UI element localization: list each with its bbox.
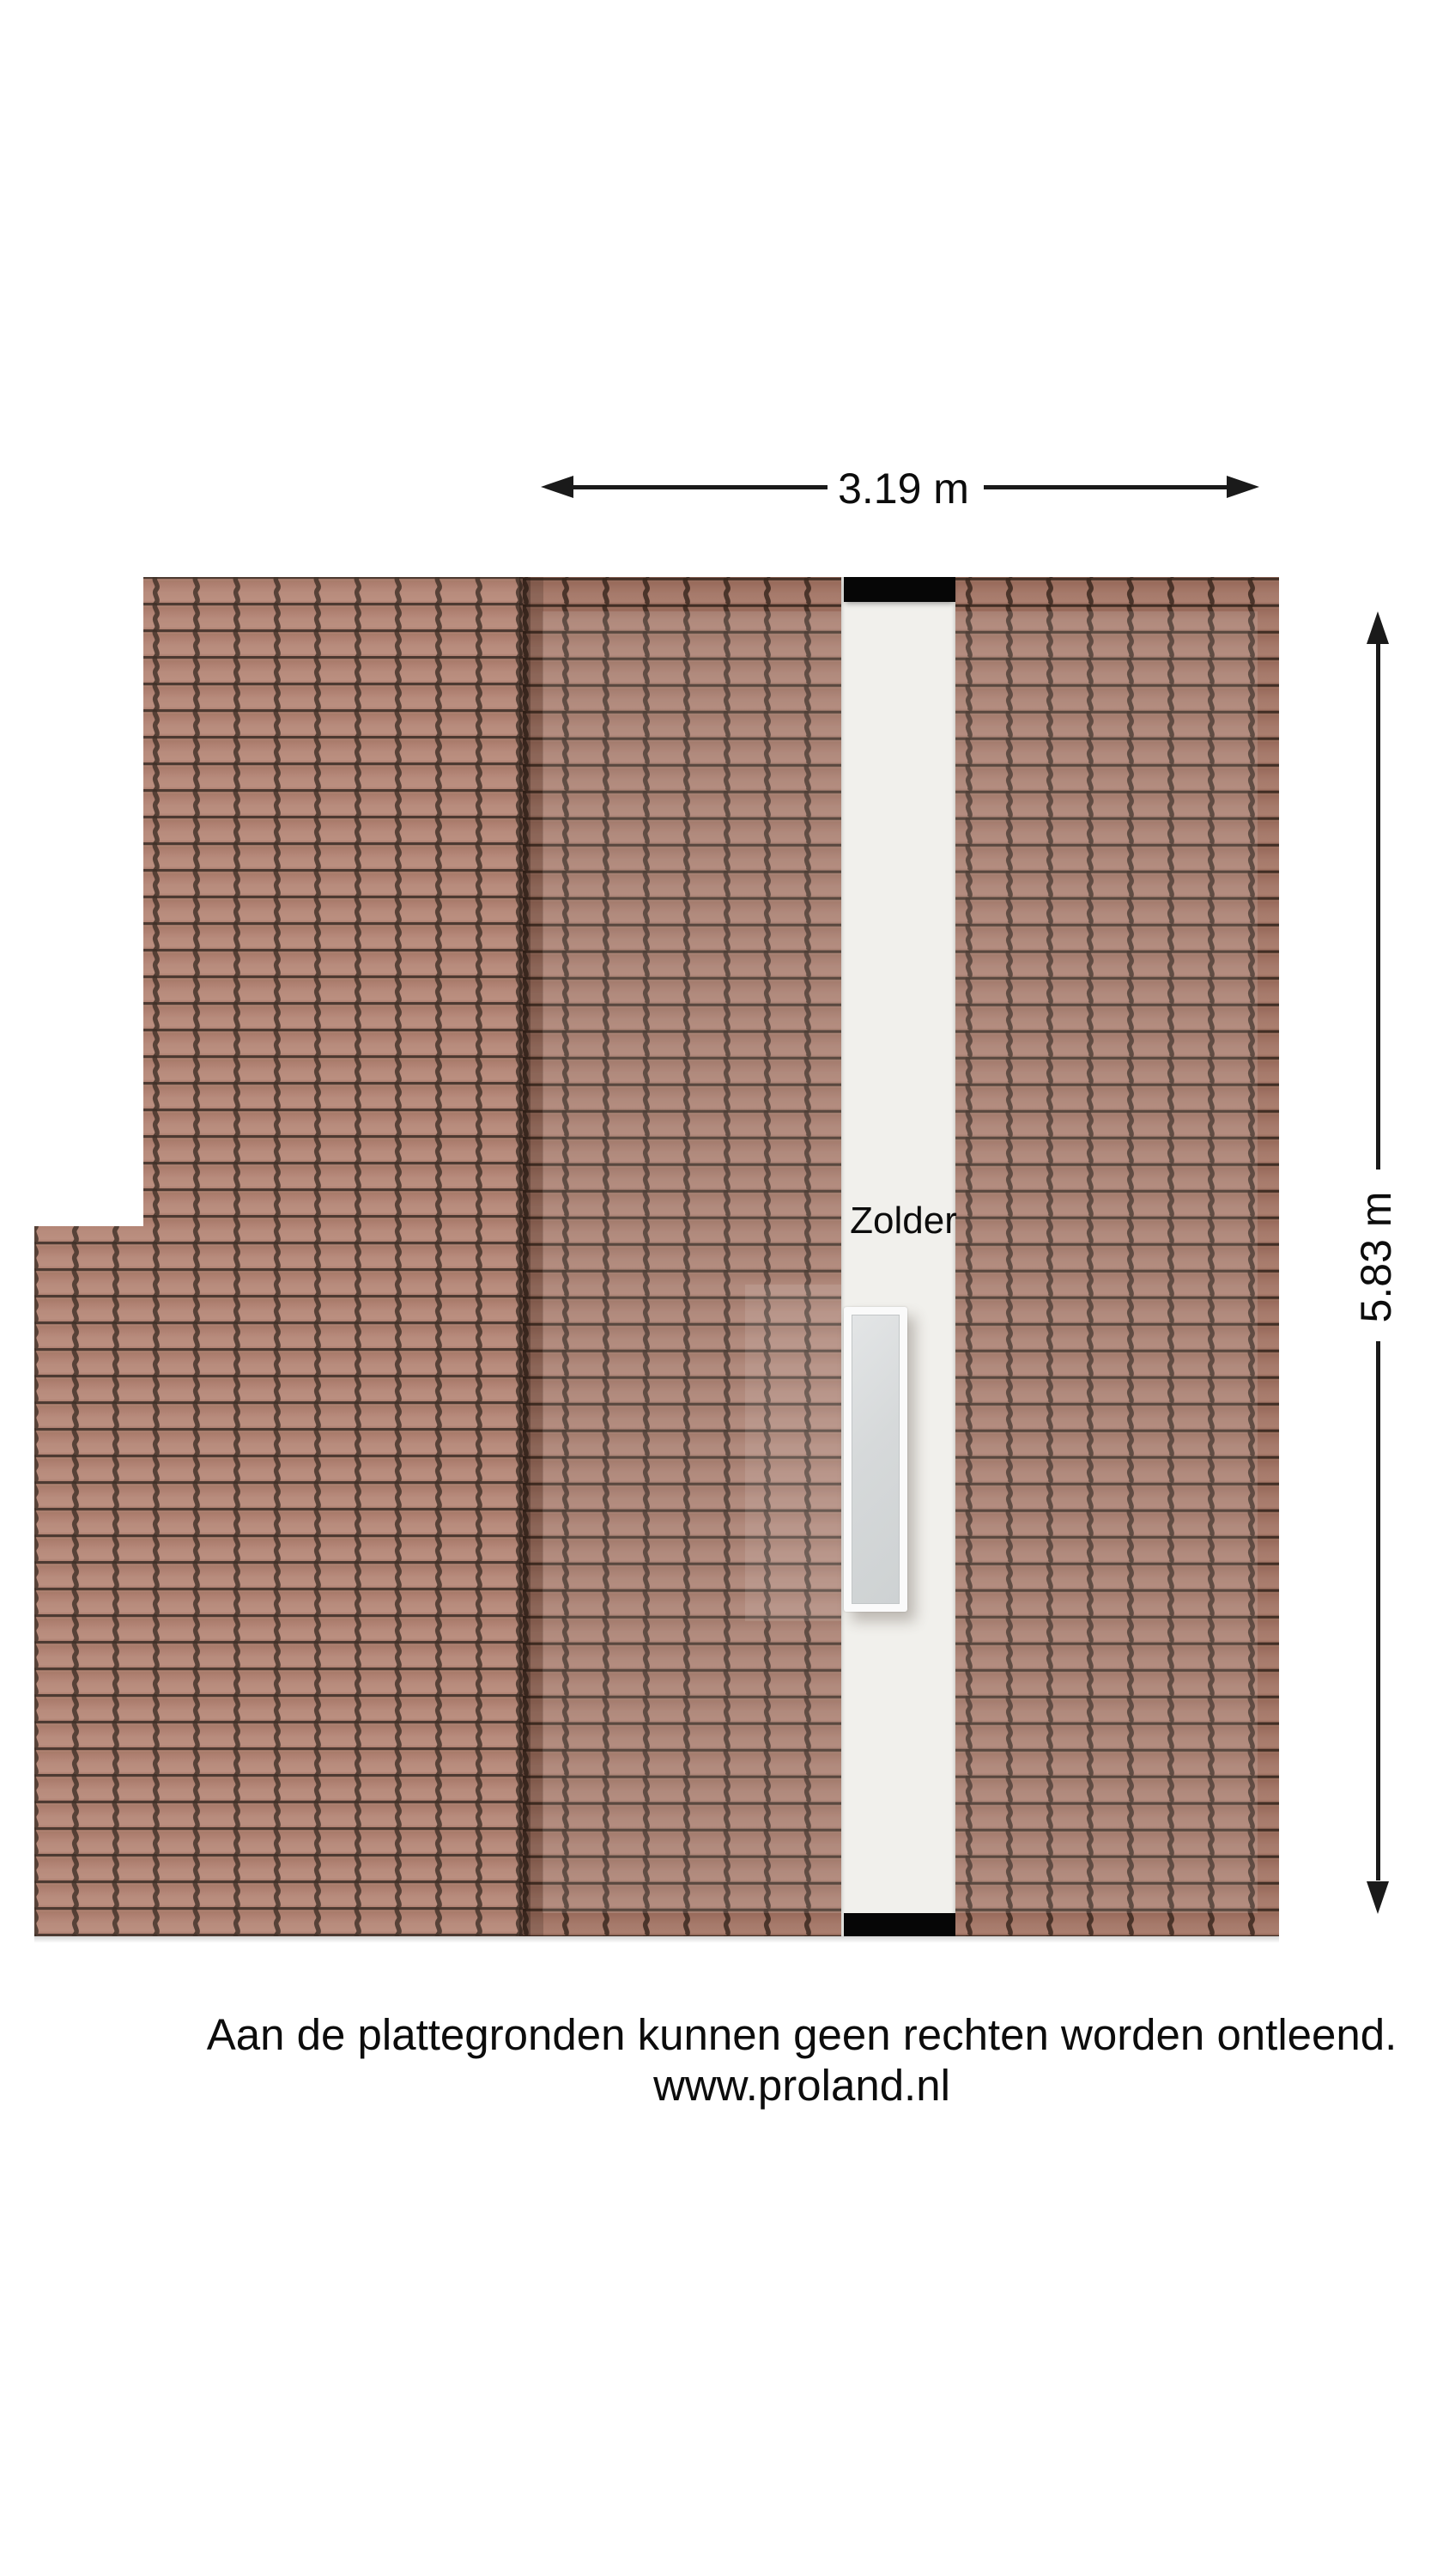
skylight-window xyxy=(844,1307,907,1612)
footer-disclaimer: Aan de plattegronden kunnen geen rechten… xyxy=(155,2009,1449,2060)
dimension-line-segment xyxy=(1376,641,1380,1170)
room-area-highlight-right xyxy=(955,611,1258,1913)
window-area-highlight xyxy=(745,1285,841,1621)
floorplan-canvas: Zolder 3.19 m 5.83 m Aan de plattegronde… xyxy=(0,0,1449,2576)
footer-website: www.proland.nl xyxy=(155,2060,1449,2111)
roof-edge-groove xyxy=(519,577,530,1936)
room-area-highlight-left xyxy=(543,611,841,1913)
dimension-width-label: 3.19 m xyxy=(820,465,987,513)
roof-edge-shadow xyxy=(530,577,543,1936)
roof-bottom-shadow xyxy=(34,1936,1279,1943)
dimension-line-segment xyxy=(570,485,828,489)
arrow-right-icon xyxy=(1227,476,1259,498)
arrow-up-icon xyxy=(1367,611,1389,644)
dimension-height-label: 5.83 m xyxy=(1352,1163,1404,1352)
dimension-line-segment xyxy=(1376,1341,1380,1880)
attic-floor-strip xyxy=(841,577,955,1936)
wall-bottom xyxy=(844,1913,955,1936)
footer: Aan de plattegronden kunnen geen rechten… xyxy=(155,2009,1449,2111)
room-label: Zolder xyxy=(828,1200,979,1242)
left-roof-tint xyxy=(34,577,528,1936)
roof-texture-layer xyxy=(0,0,1449,2576)
wall-top xyxy=(844,577,955,602)
arrow-down-icon xyxy=(1367,1881,1389,1914)
arrow-left-icon xyxy=(541,476,573,498)
skylight-glass xyxy=(852,1315,900,1604)
dimension-line-segment xyxy=(984,485,1229,489)
